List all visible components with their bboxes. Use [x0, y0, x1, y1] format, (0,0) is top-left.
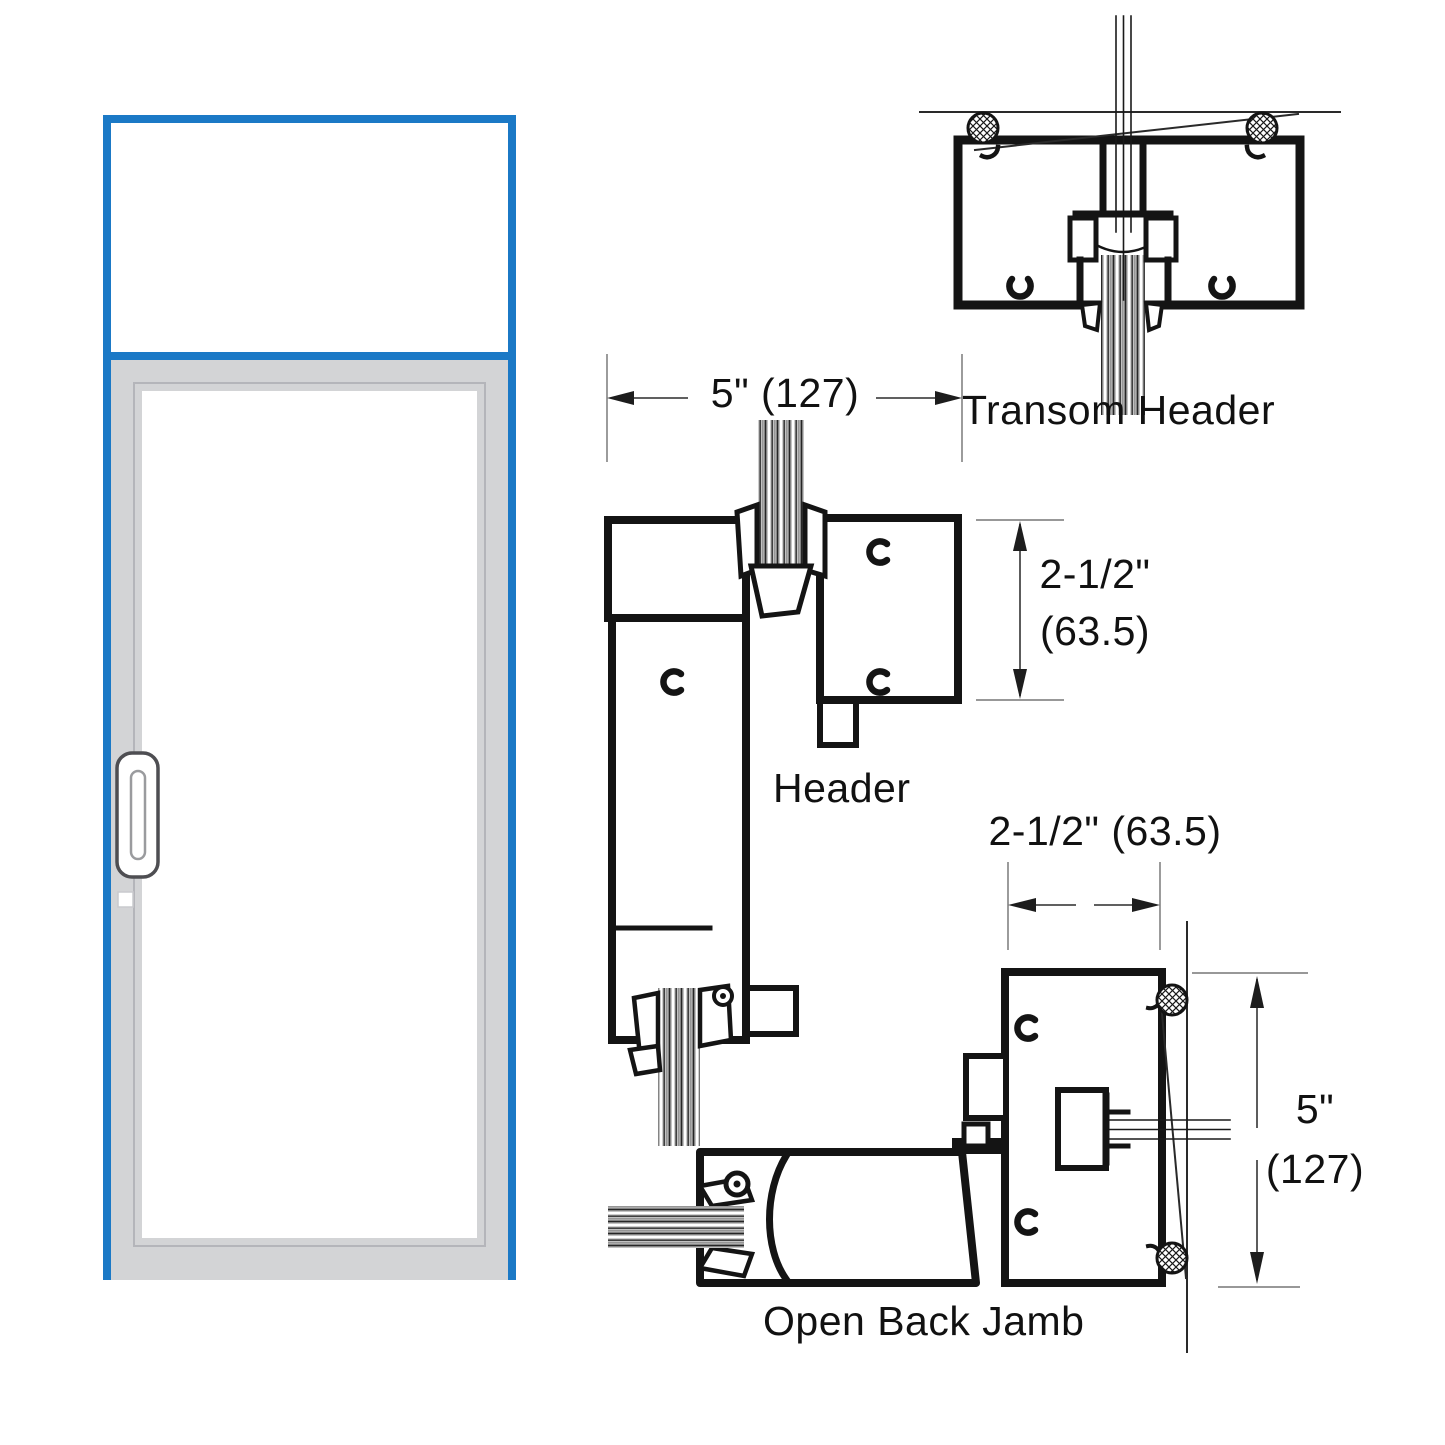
door-handle-icon [117, 753, 158, 877]
door-lock-cylinder [118, 892, 133, 907]
door-rail-section [608, 1138, 1002, 1283]
dim-jamb-depth-metric: (127) [1256, 1148, 1374, 1191]
glazing-pocket [1058, 1090, 1106, 1168]
gasket-icon [1157, 1243, 1187, 1273]
technical-drawing-page: 5" (127) Transom Header 2-1/2" (63.5) He… [0, 0, 1445, 1445]
arrowhead-icon [1013, 669, 1027, 699]
transom-header-section [920, 16, 1340, 415]
dim-transom-depth-text: 5" (127) [618, 372, 952, 415]
arrowhead-icon [1008, 898, 1036, 912]
header-left-chamber [608, 520, 746, 618]
gasket-icon [1157, 985, 1187, 1015]
door-glass [142, 391, 477, 1238]
glazing-wedge [1146, 303, 1162, 330]
setting-block [751, 566, 811, 616]
transom-panel [111, 123, 508, 352]
dim-header-face-inches: 2-1/2" [1022, 553, 1168, 596]
gasket-icon [968, 113, 998, 143]
open-back-clip [966, 1056, 1006, 1118]
header-glass-above [757, 420, 805, 566]
arrowhead-icon [1250, 976, 1264, 1008]
dim-jamb-depth-inches: 5" [1272, 1088, 1358, 1131]
label-transom-header: Transom Header [962, 389, 1275, 432]
door-elevation [103, 115, 516, 1280]
arrowhead-icon [1250, 1252, 1264, 1284]
dim-header-face-metric: (63.5) [1022, 610, 1168, 653]
dim-jamb-face-text: 2-1/2" (63.5) [952, 810, 1258, 853]
glazing-wedge [1082, 303, 1100, 330]
gasket-icon [1247, 113, 1277, 143]
label-open-back-jamb: Open Back Jamb [763, 1300, 1085, 1343]
line-work [0, 0, 1445, 1445]
rail-glass [608, 1206, 744, 1248]
arrowhead-icon [1013, 521, 1027, 551]
arrowhead-icon [1132, 898, 1160, 912]
open-back-jamb-section [964, 922, 1230, 1352]
open-back-clip [964, 1124, 988, 1146]
dim-jamb-face-lines [1008, 862, 1160, 950]
header-glass-below [658, 988, 700, 1146]
label-header: Header [773, 767, 910, 810]
header-tube [612, 618, 746, 1040]
